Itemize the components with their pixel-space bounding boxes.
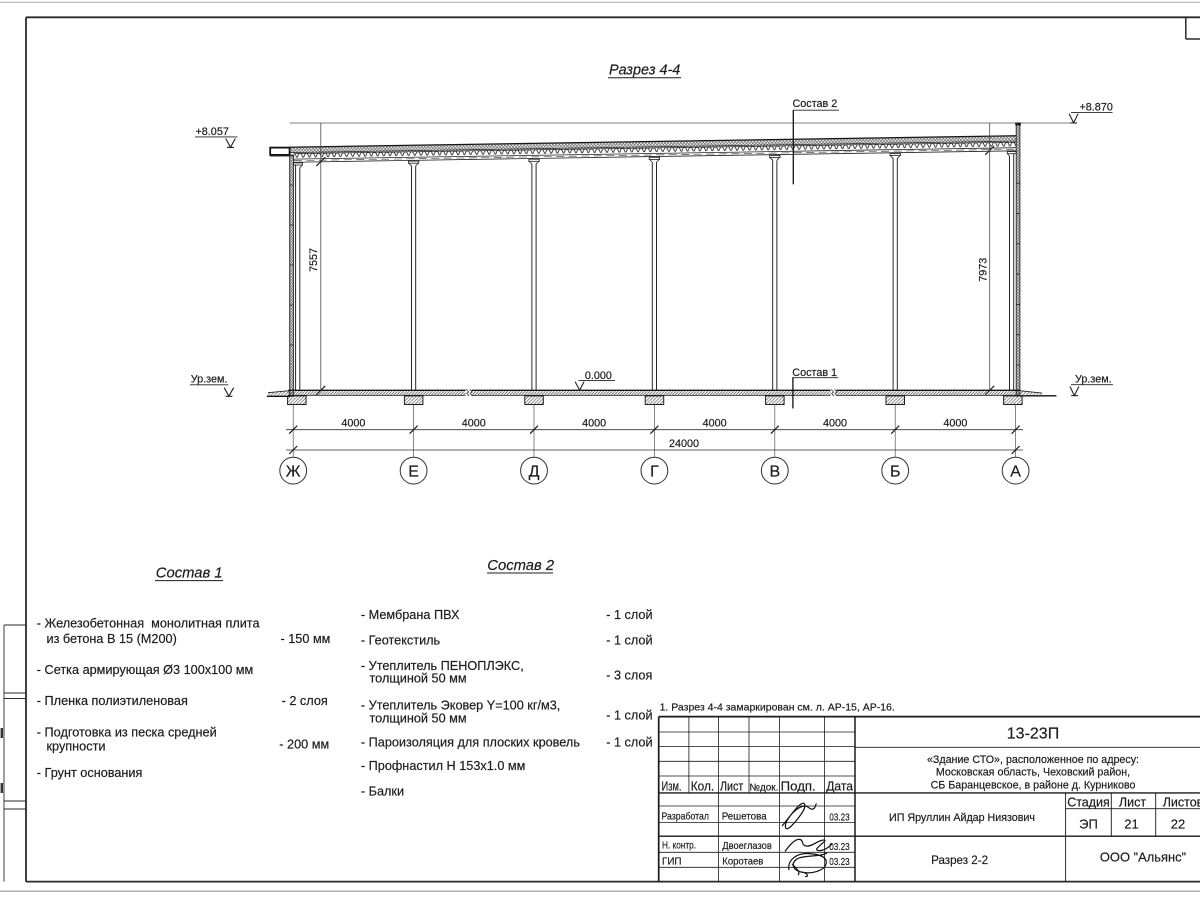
svg-text:Подп.: Подп. — [781, 780, 816, 794]
svg-text:+8.057: +8.057 — [196, 126, 229, 138]
svg-text:толщиной 50 мм: толщиной 50 мм — [370, 672, 467, 686]
svg-text:- 200 мм: - 200 мм — [279, 738, 329, 752]
svg-text:Состав 2: Состав 2 — [793, 98, 838, 110]
svg-text:24000: 24000 — [669, 438, 699, 450]
svg-text:Г: Г — [650, 463, 659, 480]
svg-text:Листов: Листов — [1163, 796, 1200, 810]
svg-text:- Пароизоляция для плоских кро: - Пароизоляция для плоских кровель — [361, 735, 580, 749]
svg-text:ЭП: ЭП — [1079, 817, 1098, 832]
svg-text:толщиной 50 мм: толщиной 50 мм — [370, 711, 467, 725]
svg-text:Разрез 2-2: Разрез 2-2 — [931, 854, 988, 867]
svg-text:Ур.зем.: Ур.зем. — [1075, 374, 1112, 386]
svg-text:- 1 слой: - 1 слой — [606, 708, 652, 722]
svg-text:А: А — [1010, 463, 1021, 480]
svg-text:Д: Д — [529, 463, 540, 480]
svg-text:Б: Б — [890, 463, 901, 480]
svg-text:Состав 2: Состав 2 — [487, 558, 555, 574]
svg-text:Состав 1: Состав 1 — [792, 367, 837, 379]
svg-text:13-23П: 13-23П — [1007, 726, 1059, 743]
svg-text:Стадия: Стадия — [1067, 796, 1110, 810]
svg-text:СБ Баранцевское, в районе д. К: СБ Баранцевское, в районе д. Курниково — [931, 779, 1136, 791]
svg-text:ООО "Альянс": ООО "Альянс" — [1100, 850, 1187, 865]
svg-text:Лист: Лист — [720, 780, 744, 794]
svg-text:4000: 4000 — [341, 418, 365, 430]
svg-text:7557: 7557 — [308, 248, 320, 272]
svg-text:Ж: Ж — [286, 463, 301, 480]
svg-text:Дата: Дата — [826, 780, 853, 794]
svg-text:Изм.: Изм. — [662, 780, 682, 794]
svg-text:№док.: №док. — [749, 783, 778, 794]
svg-text:7973: 7973 — [977, 258, 989, 282]
svg-text:из бетона В 15 (М200): из бетона В 15 (М200) — [47, 632, 177, 646]
svg-text:Ур.зем.: Ур.зем. — [191, 374, 228, 386]
svg-text:4000: 4000 — [823, 418, 847, 430]
svg-text:ИП Яруллин Айдар Ниязович: ИП Яруллин Айдар Ниязович — [889, 812, 1035, 824]
svg-text:- Профнастил Н 153х1.0 мм: - Профнастил Н 153х1.0 мм — [361, 759, 525, 773]
svg-text:4000: 4000 — [943, 418, 967, 430]
svg-text:- Мембрана ПВХ: - Мембрана ПВХ — [361, 608, 460, 622]
svg-text:ГИП: ГИП — [662, 855, 682, 867]
svg-text:- Геотекстиль: - Геотекстиль — [361, 634, 441, 648]
svg-text:22: 22 — [1171, 817, 1185, 832]
svg-text:21: 21 — [1124, 817, 1138, 832]
svg-text:- 2 слоя: - 2 слоя — [282, 694, 328, 708]
svg-text:Разработал: Разработал — [662, 811, 710, 823]
svg-text:03.23: 03.23 — [829, 812, 850, 824]
svg-text:- 1 слой: - 1 слой — [606, 608, 652, 622]
svg-text:Е: Е — [408, 463, 419, 480]
svg-text:- 3 слоя: - 3 слоя — [606, 669, 652, 683]
svg-text:- 150 мм: - 150 мм — [281, 632, 331, 646]
svg-text:«Здание СТО», расположенное по: «Здание СТО», расположенное по адресу: — [927, 754, 1139, 766]
svg-text:03.23: 03.23 — [829, 856, 850, 868]
svg-text:- 1 слой: - 1 слой — [606, 735, 652, 749]
svg-text:- Грунт основания: - Грунт основания — [37, 766, 143, 780]
svg-text:1. Разрез 4-4 замаркирован см.: 1. Разрез 4-4 замаркирован см. л. АР-15,… — [660, 701, 895, 713]
svg-text:- Пленка полиэтиленовая: - Пленка полиэтиленовая — [37, 694, 188, 708]
svg-text:- Сетка армирующая Ø3 100х100: - Сетка армирующая Ø3 100х100 мм — [37, 663, 253, 677]
svg-text:Двоеглазов: Двоеглазов — [722, 840, 772, 852]
svg-text:Решетова: Решетова — [722, 811, 767, 823]
svg-text:4000: 4000 — [462, 418, 486, 430]
svg-text:Лист: Лист — [1119, 796, 1146, 810]
svg-text:Состав 1: Состав 1 — [156, 565, 223, 581]
svg-text:- Балки: - Балки — [361, 785, 404, 799]
svg-text:4000: 4000 — [582, 418, 606, 430]
svg-text:крупности: крупности — [47, 739, 106, 753]
svg-text:Н. контр.: Н. контр. — [662, 840, 696, 852]
svg-text:Кол.: Кол. — [691, 780, 714, 794]
svg-text:+8.870: +8.870 — [1080, 102, 1113, 114]
svg-text:Московская область, Чеховский: Московская область, Чеховский район, — [936, 767, 1130, 779]
svg-text:- Железобетонная монолитная п: - Железобетонная монолитная плита — [37, 617, 261, 631]
svg-text:- Подготовка из песка средней: - Подготовка из песка средней — [37, 725, 217, 739]
svg-text:В: В — [769, 463, 780, 480]
svg-text:- 1 слой: - 1 слой — [606, 634, 652, 648]
svg-text:03.23: 03.23 — [829, 841, 850, 853]
svg-text:Разрез 4-4: Разрез 4-4 — [609, 62, 680, 78]
svg-text:4000: 4000 — [703, 418, 727, 430]
svg-text:Коротаев: Коротаев — [722, 855, 763, 867]
